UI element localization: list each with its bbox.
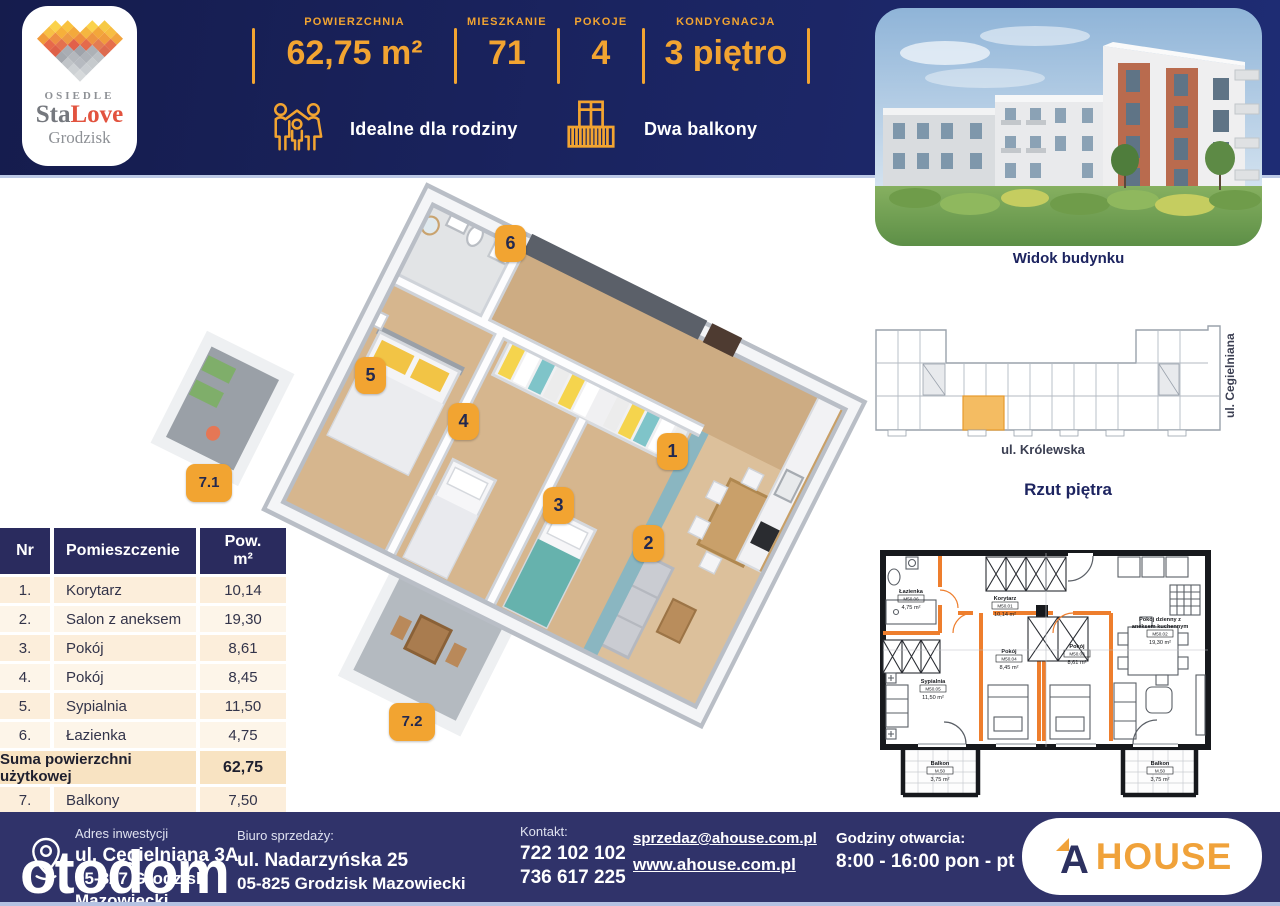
- stat-area-value: 62,75 m²: [286, 34, 422, 73]
- svg-text:M.50: M.50: [1155, 769, 1166, 774]
- svg-text:Łazienka: Łazienka: [899, 589, 924, 595]
- street-label-krolewska: ul. Królewska: [1001, 442, 1086, 457]
- svg-text:Pokój: Pokój: [1069, 644, 1085, 650]
- svg-text:M50.01: M50.01: [997, 604, 1013, 609]
- feature-family-label: Idealne dla rodziny: [350, 119, 518, 140]
- stat-apartment: MIESZKANIE 71: [457, 10, 557, 96]
- svg-text:Korytarz: Korytarz: [994, 596, 1017, 602]
- room-marker-1: 1: [657, 433, 688, 470]
- logo-brand-gray: Sta: [36, 101, 71, 128]
- room-marker-5: 5: [355, 357, 386, 394]
- stat-rooms-value: 4: [591, 34, 610, 73]
- stat-floor-label: KONDYGNACJA: [676, 16, 775, 28]
- svg-text:Pokój dzienny z: Pokój dzienny z: [1139, 617, 1181, 623]
- svg-text:Balkon: Balkon: [931, 761, 950, 767]
- footer-phone-1[interactable]: 722 102 102: [520, 842, 626, 866]
- footer-hours: Godziny otwarcia: 8:00 - 16:00 pon - pt: [836, 830, 1014, 874]
- stat-floor: KONDYGNACJA 3 piętro: [645, 10, 807, 96]
- website-link[interactable]: www.ahouse.com.pl: [633, 855, 817, 875]
- feature-balconies-label: Dwa balkony: [644, 119, 757, 140]
- svg-text:M50.04: M50.04: [1001, 657, 1017, 662]
- room-marker-7-1: 7.1: [186, 464, 232, 502]
- highlighted-unit: [963, 396, 1004, 430]
- svg-text:aneksem kuchennym: aneksem kuchennym: [1132, 624, 1189, 630]
- svg-text:M50.05: M50.05: [925, 687, 941, 692]
- svg-text:4,75 m²: 4,75 m²: [902, 605, 921, 611]
- footer-hours-value: 8:00 - 16:00 pon - pt: [836, 850, 1014, 874]
- table-header-nr: Nr: [0, 528, 50, 574]
- site-plan-caption: Rzut piętra: [868, 480, 1268, 500]
- heart-mosaic-icon: [37, 20, 123, 84]
- svg-text:11,50 m²: 11,50 m²: [922, 695, 944, 701]
- label-balkon-left: Balkon M.50 3,75 m²: [927, 761, 953, 783]
- street-label-cegielniana: ul. Cegielniana: [1223, 333, 1237, 418]
- svg-text:M50.02: M50.02: [1152, 632, 1168, 637]
- ahouse-logo: A HOUSE: [1022, 818, 1262, 895]
- stat-area: POWIERZCHNIA 62,75 m²: [255, 10, 454, 96]
- logo-brand: StaLove: [36, 102, 124, 128]
- footer-phone-2[interactable]: 736 617 225: [520, 866, 626, 890]
- email-link[interactable]: sprzedaz@ahouse.com.pl: [633, 830, 817, 847]
- room-marker-4: 4: [448, 403, 479, 440]
- ahouse-logo-text: HOUSE: [1096, 836, 1233, 878]
- ahouse-a-glyph: A: [1052, 835, 1094, 879]
- floor-site-plan: ul. Królewska ul. Cegielniana: [868, 318, 1268, 470]
- svg-text:M50.06: M50.06: [903, 597, 919, 602]
- footer-hours-label: Godziny otwarcia:: [836, 830, 1014, 847]
- stat-floor-value: 3 piętro: [664, 34, 787, 73]
- svg-text:8,45 m²: 8,45 m²: [1000, 665, 1019, 671]
- footer-sales-office: Biuro sprzedaży: ul. Nadarzyńska 25 05-8…: [237, 828, 466, 895]
- logo-line-grodzisk: Grodzisk: [48, 128, 110, 148]
- photo-caption: Widok budynku: [875, 250, 1262, 267]
- otodom-watermark: otodom: [20, 838, 228, 906]
- stat-rooms: POKOJE 4: [560, 10, 642, 96]
- feature-family: Idealne dla rodziny: [268, 98, 518, 161]
- estate-logo: OSIEDLE StaLove Grodzisk: [22, 6, 137, 166]
- footer-contact: Kontakt: 722 102 102 736 617 225: [520, 824, 626, 890]
- table-summary-label: Suma powierzchni użytkowej: [0, 751, 196, 784]
- label-balkon-right: Balkon M.50 3,75 m²: [1147, 761, 1173, 783]
- svg-text:Sypialnia: Sypialnia: [921, 679, 946, 685]
- table-summary-value: 62,75: [200, 751, 286, 784]
- svg-text:M.50: M.50: [935, 769, 946, 774]
- svg-text:A: A: [1060, 838, 1089, 879]
- svg-text:8,61 m²: 8,61 m²: [1068, 660, 1087, 666]
- room-marker-6: 6: [495, 225, 526, 262]
- table-header-area: Pow.m²: [200, 528, 286, 574]
- svg-text:3,75 m²: 3,75 m²: [1151, 777, 1170, 783]
- feature-balconies: Dwa balkony: [562, 98, 757, 161]
- flyer-page: POWIERZCHNIA 62,75 m² MIESZKANIE 71 POKO…: [0, 0, 1280, 906]
- svg-text:19,30 m²: 19,30 m²: [1149, 640, 1171, 646]
- stat-divider: [807, 28, 810, 84]
- stat-area-label: POWIERZCHNIA: [304, 16, 405, 28]
- stat-apartment-value: 71: [488, 34, 526, 73]
- footer-contact-label: Kontakt:: [520, 824, 626, 839]
- stat-apartment-label: MIESZKANIE: [467, 16, 547, 28]
- svg-text:Balkon: Balkon: [1151, 761, 1170, 767]
- svg-text:3,75 m²: 3,75 m²: [931, 777, 950, 783]
- balcony-icon: [562, 98, 620, 161]
- svg-text:M50.03: M50.03: [1069, 652, 1085, 657]
- footer-office-street: ul. Nadarzyńska 25: [237, 849, 466, 873]
- room-marker-7-2: 7.2: [389, 703, 435, 741]
- site-plan-balconies: [888, 430, 1186, 436]
- stat-rooms-label: POKOJE: [574, 16, 627, 28]
- family-icon: [268, 98, 326, 161]
- floorplan-2d: Łazienka M50.06 4,75 m² Korytarz M50.01 …: [878, 545, 1218, 803]
- rooms-table: Nr Pomieszczenie Pow.m² 1. Korytarz 10,1…: [0, 528, 283, 813]
- footer-office-label: Biuro sprzedaży:: [237, 828, 466, 843]
- footer-office-city: 05-825 Grodzisk Mazowiecki: [237, 873, 466, 895]
- footer-links: sprzedaz@ahouse.com.pl www.ahouse.com.pl: [633, 830, 817, 883]
- svg-text:10,14 m²: 10,14 m²: [994, 612, 1016, 618]
- building-photo: [875, 8, 1262, 246]
- logo-brand-accent: Love: [70, 101, 123, 128]
- building-render: [875, 8, 1262, 246]
- stats-row: POWIERZCHNIA 62,75 m² MIESZKANIE 71 POKO…: [252, 10, 810, 96]
- balcony-7-1: [158, 339, 287, 479]
- room-marker-3: 3: [543, 487, 574, 524]
- room-marker-2: 2: [633, 525, 664, 562]
- table-header-name: Pomieszczenie: [54, 528, 196, 574]
